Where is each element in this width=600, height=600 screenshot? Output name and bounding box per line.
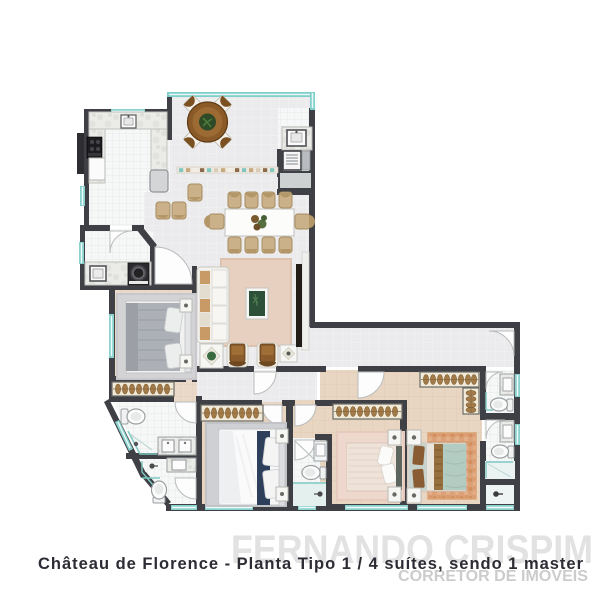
svg-text:Château de Florence - Planta T: Château de Florence - Planta Tipo 1 / 4 …	[38, 555, 584, 573]
